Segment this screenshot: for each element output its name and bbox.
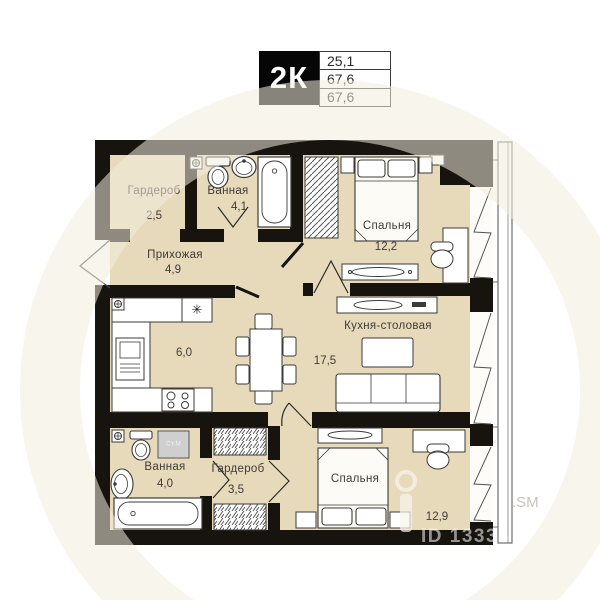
watermark-id-text: ID 13333 — [421, 526, 510, 548]
watermark-site-text: .SM — [512, 494, 539, 511]
floor-plan-page: 2К 25,1 67,6 67,6 — [0, 0, 600, 600]
watermark-pin-icon — [395, 470, 417, 532]
living-area-value: 25,1 — [320, 52, 390, 70]
